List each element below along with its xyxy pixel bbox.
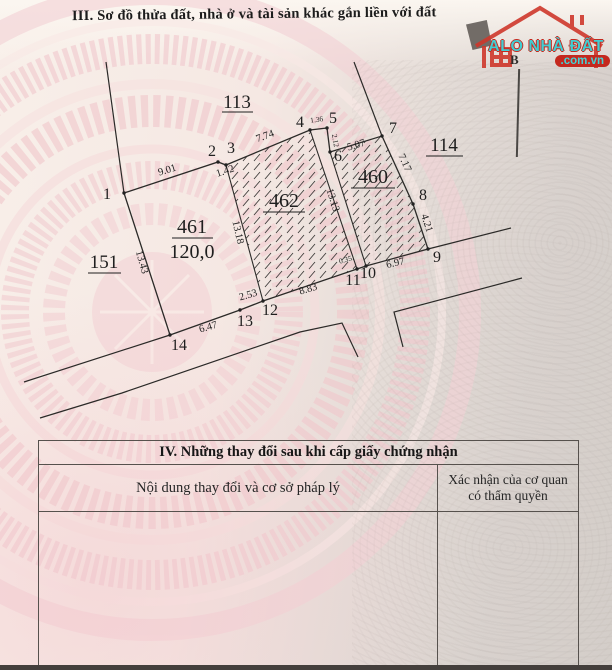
vertex-label: 3 — [227, 140, 235, 157]
table-body-cell-left — [39, 512, 437, 670]
vertex-label: 1 — [103, 186, 111, 203]
cadastral-diagram: 1 2 3 4 5 6 7 8 9 10 11 12 13 14 9.01 1.… — [0, 0, 612, 440]
table-body-cell-right — [437, 512, 578, 670]
parcel-461-number: 461 — [177, 216, 207, 238]
edge-length: 13.43 — [133, 249, 150, 275]
adjacent-parcel-151: 151 — [90, 252, 119, 273]
vertex-label: 13 — [237, 313, 253, 330]
vertex-label: 4 — [296, 114, 304, 131]
col-header-authority-confirmation: Xác nhận của cơ quan có thẩm quyền — [437, 465, 578, 511]
vertex-label: 9 — [433, 249, 441, 266]
vertex-label: 11 — [345, 272, 360, 289]
edge-length: 2.12 — [330, 133, 341, 148]
col-header-authority-line2: có thẩm quyền — [468, 488, 547, 504]
changes-table: IV. Những thay đổi sau khi cấp giấy chứn… — [38, 440, 579, 670]
parcel-462-number: 462 — [269, 190, 299, 212]
adjacent-parcel-113: 113 — [223, 92, 251, 113]
scanned-certificate-page: III. Sơ đồ thửa đất, nhà ở và tài sản kh… — [0, 0, 612, 670]
vertex-label: 2 — [208, 143, 216, 160]
col-header-content-legal-basis: Nội dung thay đổi và cơ sở pháp lý — [39, 465, 437, 511]
vertex-label: 5 — [329, 110, 337, 127]
edge-length: 7.74 — [255, 128, 277, 145]
edge-length: 6.47 — [198, 320, 219, 336]
vertex-label: 7 — [389, 120, 397, 137]
col-header-authority-line1: Xác nhận của cơ quan — [448, 472, 568, 488]
vertex-label: 14 — [171, 337, 187, 354]
table-title: IV. Những thay đổi sau khi cấp giấy chứn… — [39, 441, 578, 465]
parcel-461-area: 120,0 — [170, 241, 215, 263]
edge-length: 1.36 — [310, 114, 324, 125]
vertex-label: 8 — [419, 187, 427, 204]
parcel-460-number: 460 — [358, 166, 388, 188]
table-empty-body — [39, 512, 578, 670]
adjacent-parcel-114: 114 — [430, 135, 458, 156]
vertex-label: 6 — [334, 148, 342, 165]
vertex-label: 12 — [262, 302, 278, 319]
table-header-row: Nội dung thay đổi và cơ sở pháp lý Xác n… — [39, 465, 578, 512]
photo-bottom-edge — [0, 665, 612, 670]
edge-length: 2.53 — [238, 288, 259, 304]
vertex-label: 10 — [360, 265, 376, 282]
